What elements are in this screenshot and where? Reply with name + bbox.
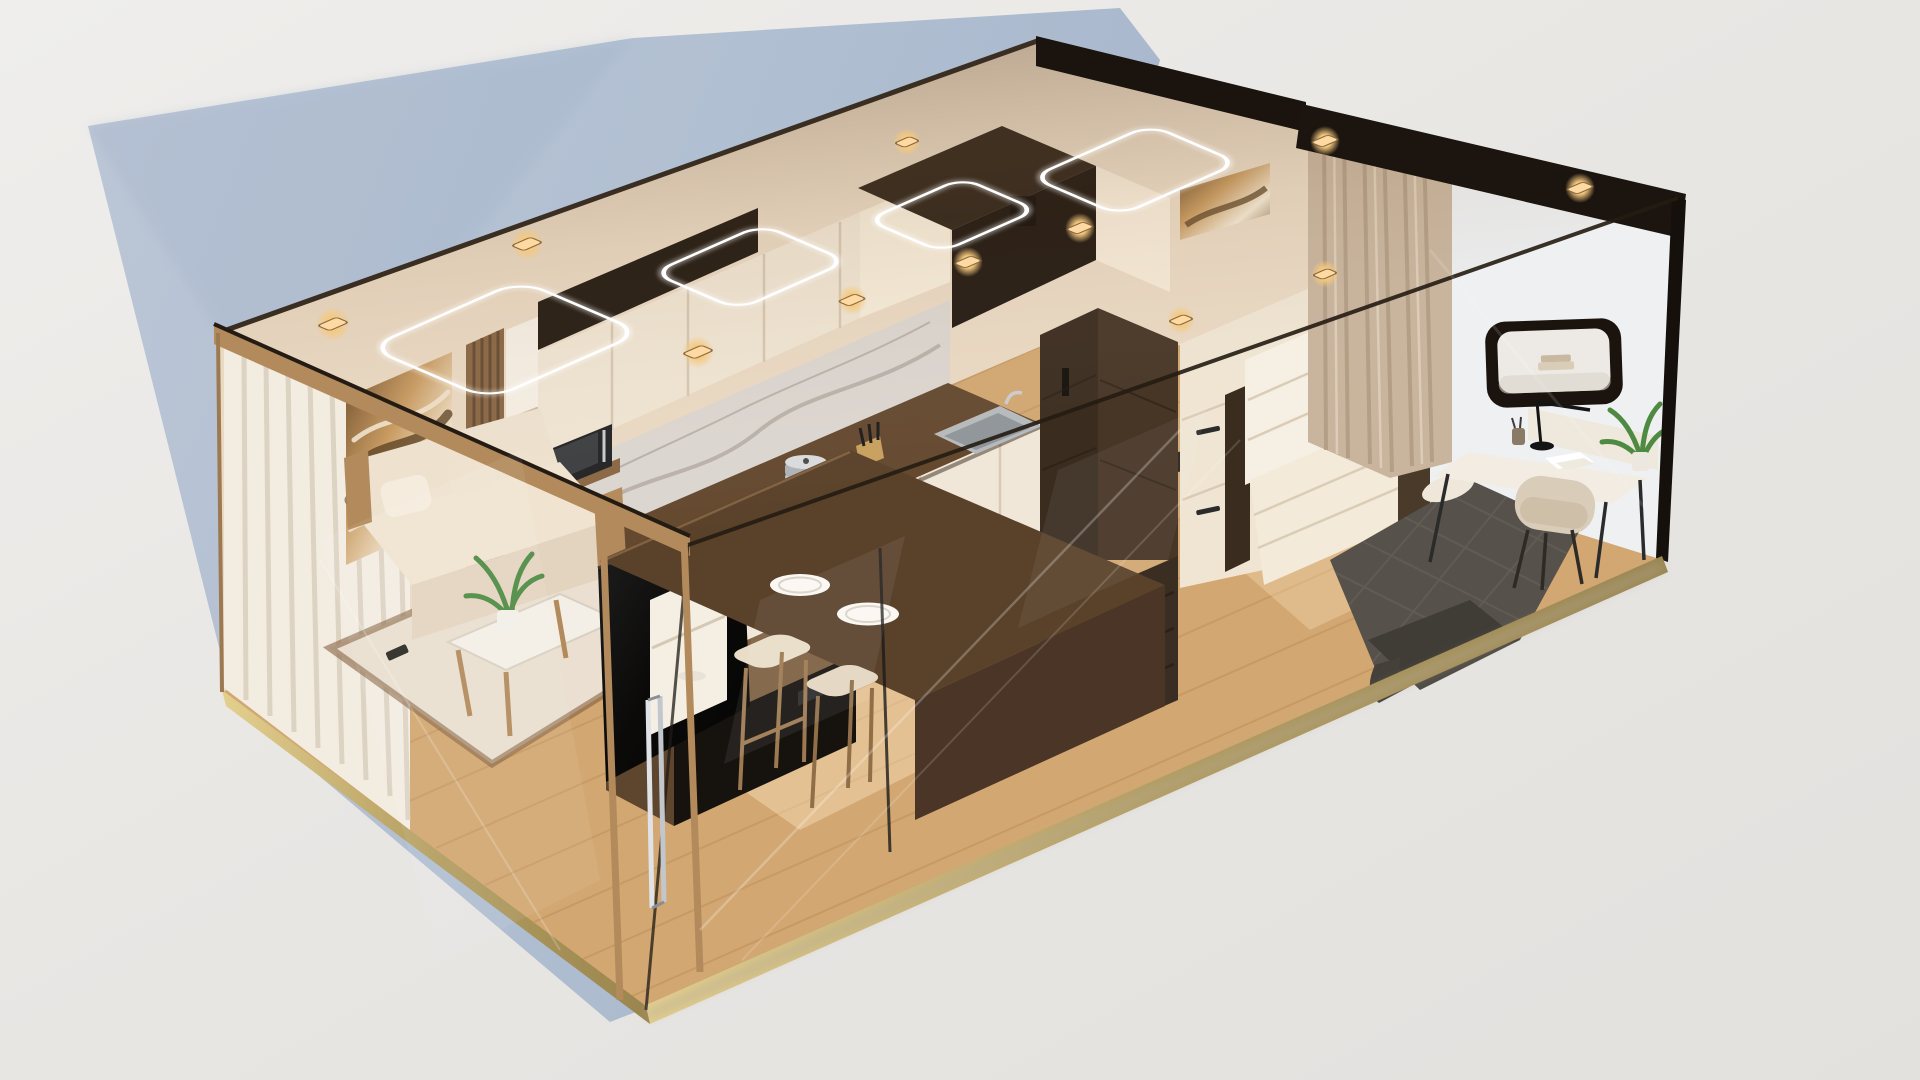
apartment-render — [0, 0, 1920, 1080]
book-2 — [1541, 354, 1571, 362]
book — [1538, 361, 1574, 370]
sofa-arm-left — [344, 450, 372, 530]
wall-mounted-rounded-shelf — [1485, 318, 1624, 409]
render-stage — [0, 0, 1920, 1080]
plant-pot — [1632, 452, 1649, 471]
